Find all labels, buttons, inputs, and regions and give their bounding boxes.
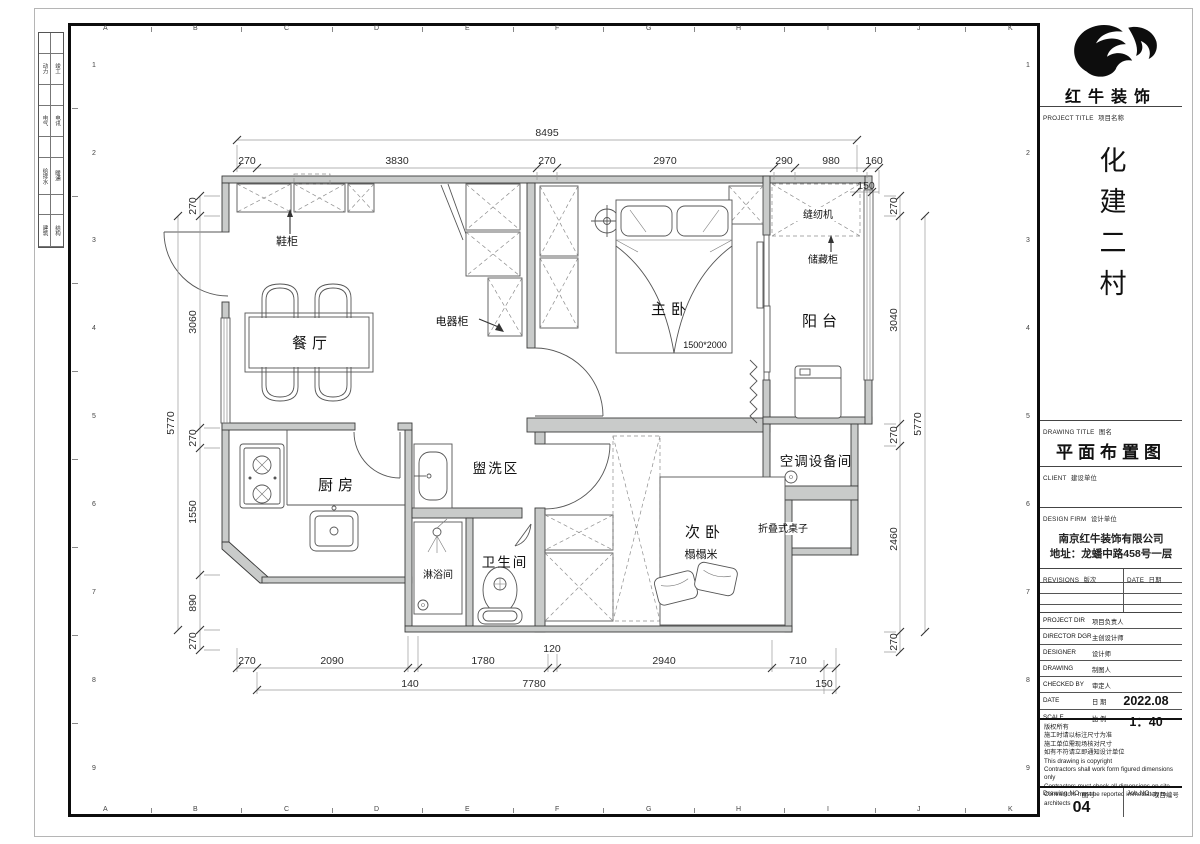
dim-text: 150 bbox=[815, 678, 833, 690]
label-shoe-cabinet: 鞋柜 bbox=[276, 234, 298, 248]
wardrobe-second bbox=[545, 515, 613, 621]
label-tatami: 榻榻米 bbox=[685, 547, 718, 561]
washbasin bbox=[414, 444, 452, 508]
kitchen-door bbox=[354, 432, 400, 478]
dining-furniture bbox=[237, 174, 522, 401]
dim-text: 140 bbox=[401, 678, 419, 690]
label-storage-cabinet: 储藏柜 bbox=[808, 253, 838, 266]
appliance-cabinet bbox=[441, 184, 522, 336]
room-label-wash: 盥洗区 bbox=[473, 461, 520, 476]
dim-text: 270 bbox=[238, 655, 256, 667]
drawing-sheet: 动力 竣工 电气 电讯 给排水 暖通 建筑 结构 A B C D E F G H… bbox=[0, 0, 1200, 844]
washing-machine bbox=[795, 366, 841, 418]
dim-text: 890 bbox=[187, 594, 199, 612]
dim-text: 3830 bbox=[385, 155, 409, 167]
label-bed-size: 1500*2000 bbox=[683, 340, 727, 350]
dim-text: 710 bbox=[789, 655, 807, 667]
room-label-wc: 卫生间 bbox=[482, 555, 529, 570]
dimensions-left: 270 3060 270 1550 890 270 5770 bbox=[165, 192, 220, 654]
dim-text: 2090 bbox=[320, 655, 344, 667]
dim-text: 1780 bbox=[471, 655, 495, 667]
dim-text: 2940 bbox=[652, 655, 676, 667]
dim-text: 8495 bbox=[535, 127, 559, 139]
room-label-shower: 淋浴间 bbox=[423, 568, 453, 581]
dim-text: 5770 bbox=[165, 411, 177, 435]
master-door bbox=[535, 348, 603, 416]
dim-text: 270 bbox=[187, 429, 199, 447]
kitchen-sink bbox=[310, 506, 358, 551]
dim-text: 270 bbox=[187, 632, 199, 650]
dim-text: 2970 bbox=[653, 155, 677, 167]
toilet bbox=[478, 567, 522, 624]
room-label-kitchen: 厨房 bbox=[318, 477, 358, 494]
label-sewing-machine: 缝纫机 bbox=[803, 208, 833, 221]
sliding-door-balcony bbox=[757, 235, 770, 380]
room-label-dining: 餐厅 bbox=[292, 335, 332, 352]
dimensions-bottom: 270 2090 1780 120 2940 710 140 7780 150 bbox=[233, 636, 840, 694]
tatami-platform bbox=[660, 477, 785, 625]
dim-text: 7780 bbox=[522, 678, 546, 690]
dim-text: 3040 bbox=[888, 308, 900, 332]
dim-text: 980 bbox=[822, 155, 840, 167]
dim-text: 3060 bbox=[187, 310, 199, 334]
room-label-ac: 空调设备间 bbox=[780, 453, 853, 469]
room-label-master: 主卧 bbox=[651, 301, 691, 318]
stove bbox=[240, 444, 284, 508]
room-label-second: 次卧 bbox=[685, 524, 725, 541]
window-balcony bbox=[864, 190, 873, 380]
label-folding-table: 折叠式桌子 bbox=[758, 522, 808, 535]
dim-text: 290 bbox=[775, 155, 793, 167]
dim-text: 270 bbox=[187, 197, 199, 215]
bathroom-door bbox=[515, 524, 531, 546]
second-bedroom-furniture bbox=[545, 436, 785, 625]
second-bedroom-door bbox=[545, 444, 610, 509]
dim-text: 1550 bbox=[187, 500, 199, 524]
window-dining bbox=[221, 318, 230, 423]
floor-plan: 餐厅 厨房 盥洗区 卫生间 淋浴间 主卧 次卧 阳台 空调设备间 鞋柜 电器柜 … bbox=[0, 0, 1200, 844]
label-appliance-cabinet: 电器柜 bbox=[436, 315, 469, 328]
dim-text: 5770 bbox=[912, 412, 924, 436]
room-label-balcony: 阳台 bbox=[802, 313, 842, 330]
dim-text: 160 bbox=[865, 155, 883, 167]
dim-text: 150 bbox=[857, 180, 875, 192]
dimensions-right: 270 3040 270 2460 270 5770 bbox=[884, 192, 929, 656]
dim-text: 270 bbox=[238, 155, 256, 167]
double-bed bbox=[616, 200, 732, 353]
shower bbox=[414, 519, 462, 614]
dim-text: 270 bbox=[888, 197, 900, 215]
dim-text: 270 bbox=[888, 426, 900, 444]
dim-text: 270 bbox=[538, 155, 556, 167]
dim-text: 2460 bbox=[888, 527, 900, 551]
dim-text: 270 bbox=[888, 633, 900, 651]
entry-door bbox=[164, 232, 228, 296]
dim-text: 120 bbox=[543, 643, 561, 655]
radiator-zigzag bbox=[750, 360, 757, 423]
